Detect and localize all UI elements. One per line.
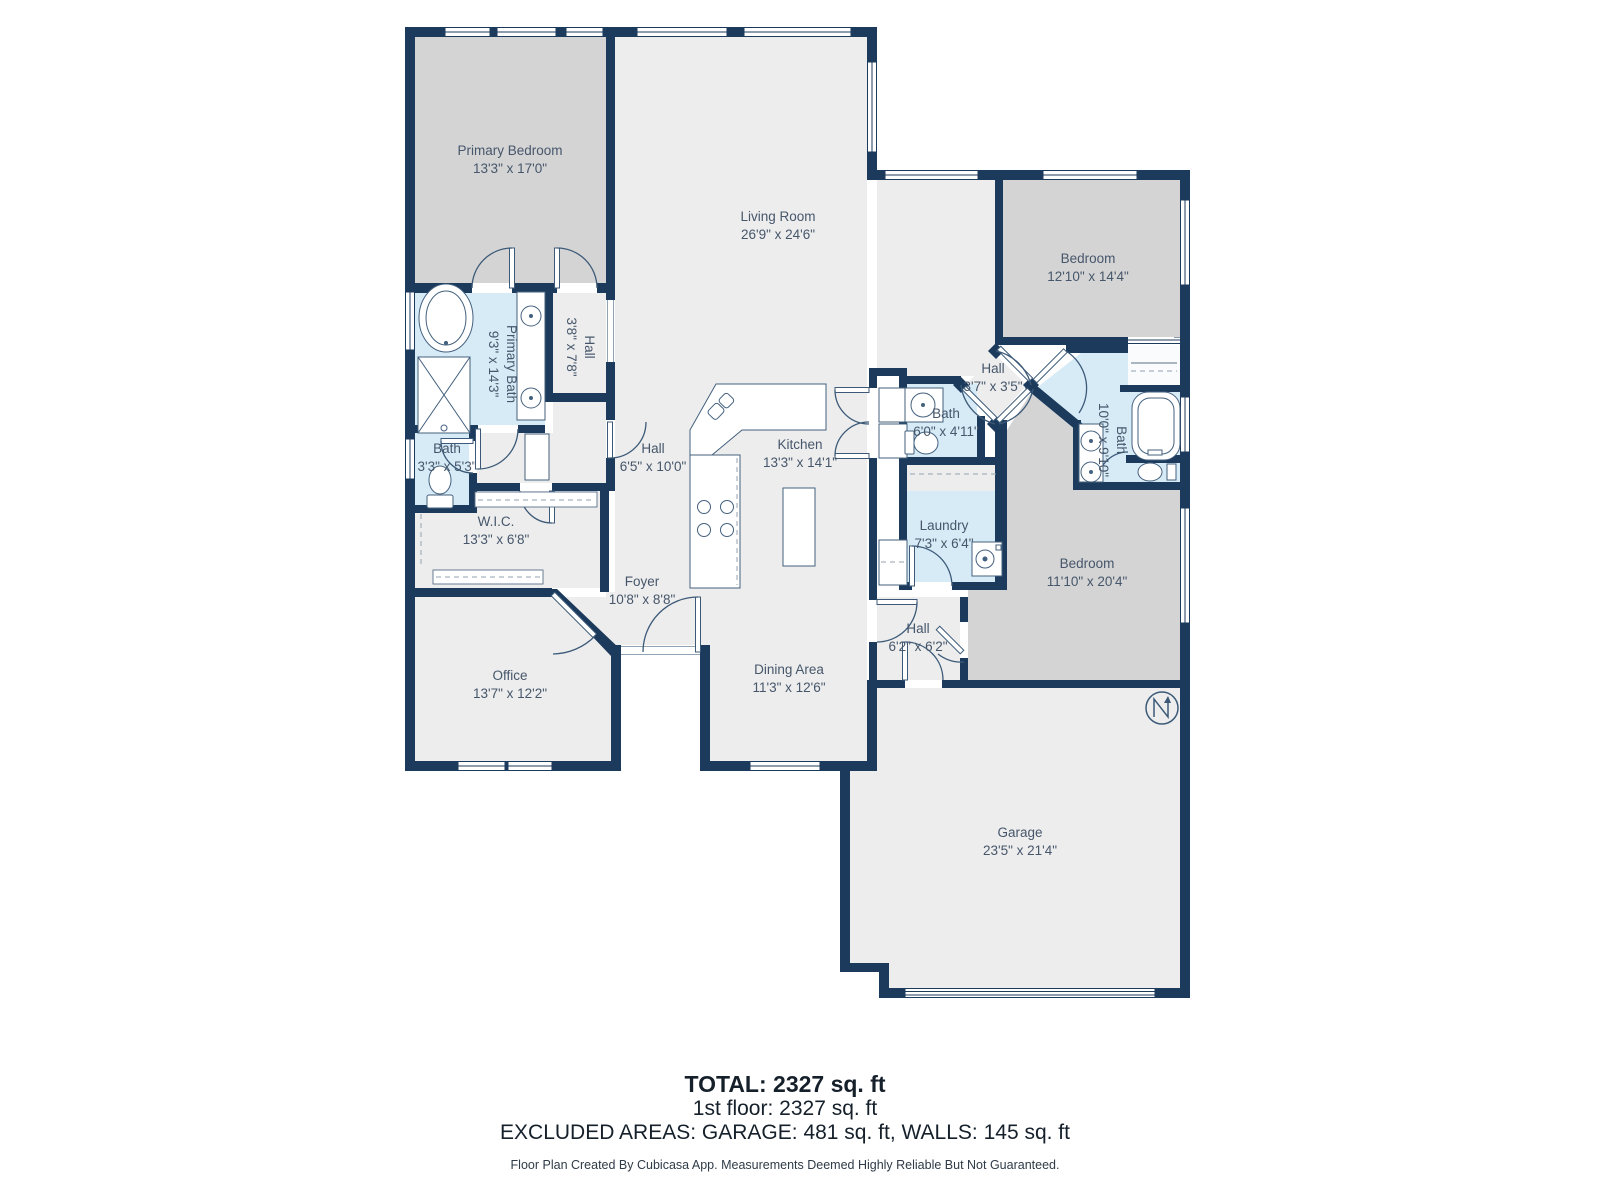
room-label-primary-bath: Primary Bath 9'3" x 14'3" [484,325,520,403]
room-dims: 12'10" x 14'4" [1047,268,1129,286]
room-label-dining: Dining Area 11'3" x 12'6" [752,661,825,697]
room-name: Primary Bedroom [457,142,562,160]
room-name: W.I.C. [463,513,530,531]
room-dims: 11'10" x 20'4" [1047,573,1128,591]
room-dims: 11'3" x 12'6" [752,679,825,697]
room-label-hall-garage: Hall 6'2" x 6'2" [888,620,947,656]
summary-footer: TOTAL: 2327 sq. ft 1st floor: 2327 sq. f… [0,1072,1570,1172]
room-dims: 13'3" x 17'0" [457,160,562,178]
room-label-bath-small: Bath 3'3" x 5'3" [417,440,476,476]
room-name: Hall [963,360,1022,378]
room-label-hall-diamond: Hall 3'7" x 3'5" [963,360,1022,396]
room-name: Garage [983,824,1057,842]
room-dims: 13'3" x 14'1" [763,454,837,472]
room-dims: 10'8" x 8'8" [609,591,676,609]
room-label-foyer: Foyer 10'8" x 8'8" [609,573,676,609]
room-name: Bedroom [1047,555,1128,573]
room-label-garage: Garage 23'5" x 21'4" [983,824,1057,860]
room-name: Hall [580,317,598,376]
floor-plan-svg [0,0,1600,1200]
room-dims: 26'9" x 24'6" [740,226,815,244]
toilet-icon [1138,463,1162,481]
room-name: Primary Bath [502,325,520,403]
room-name: Hall [888,620,947,638]
room-name: Office [473,667,547,685]
room-dims: 6'5" x 10'0" [620,458,687,476]
room-dims: 6'2" x 6'2" [888,638,947,656]
room-name: Dining Area [752,661,825,679]
room-name: Laundry [914,517,973,535]
room-name: Foyer [609,573,676,591]
room-dims: 3'8" x 7'8" [562,317,580,376]
room-name: Bedroom [1047,250,1129,268]
room-label-laundry: Laundry 7'3" x 6'4" [914,517,973,553]
room-label-hall-main: Hall 6'5" x 10'0" [620,440,687,476]
room-name: Hall [620,440,687,458]
room-dims: 3'7" x 3'5" [963,378,1022,396]
total-area-text: TOTAL: 2327 sq. ft [0,1072,1570,1097]
room-label-kitchen: Kitchen 13'3" x 14'1" [763,436,837,472]
room-dims: 7'3" x 6'4" [914,535,973,553]
room-dims: 13'7" x 12'2" [473,685,547,703]
credit-text: Floor Plan Created By Cubicasa App. Meas… [0,1158,1570,1172]
pantry-cabinet [879,388,907,422]
room-dims: 6'0" x 4'11" [913,423,979,441]
toilet-icon [427,495,453,508]
floor-plan-page: Primary Bedroom 13'3" x 17'0" Living Roo… [0,0,1600,1200]
room-name: Kitchen [763,436,837,454]
room-label-wic: W.I.C. 13'3" x 6'8" [463,513,530,549]
room-label-hall-small: Hall 3'8" x 7'8" [562,317,598,376]
room-name: Bath [1112,403,1130,477]
room-label-bedroom-right: Bedroom 11'10" x 20'4" [1047,555,1128,591]
kitchen-island [783,488,815,566]
room-dims: 10'0" x 9'10" [1094,403,1112,477]
room-dims: 3'3" x 5'3" [417,458,476,476]
room-dims: 23'5" x 21'4" [983,842,1057,860]
room-name: Bath [417,440,476,458]
floor1-area-text: 1st floor: 2327 sq. ft [0,1097,1570,1121]
room-dims: 9'3" x 14'3" [484,325,502,403]
room-label-office: Office 13'7" x 12'2" [473,667,547,703]
room-label-living-room: Living Room 26'9" x 24'6" [740,208,815,244]
room-name: Living Room [740,208,815,226]
room-dims: 13'3" x 6'8" [463,531,530,549]
excluded-area-text: EXCLUDED AREAS: GARAGE: 481 sq. ft, WALL… [0,1121,1570,1145]
room-label-primary-bedroom: Primary Bedroom 13'3" x 17'0" [457,142,562,178]
room-label-bath-right: Bath 10'0" x 9'10" [1094,403,1130,477]
room-label-bedroom-top: Bedroom 12'10" x 14'4" [1047,250,1129,286]
room-name: Bath [913,405,979,423]
room-label-bath-mid: Bath 6'0" x 4'11" [913,405,979,441]
